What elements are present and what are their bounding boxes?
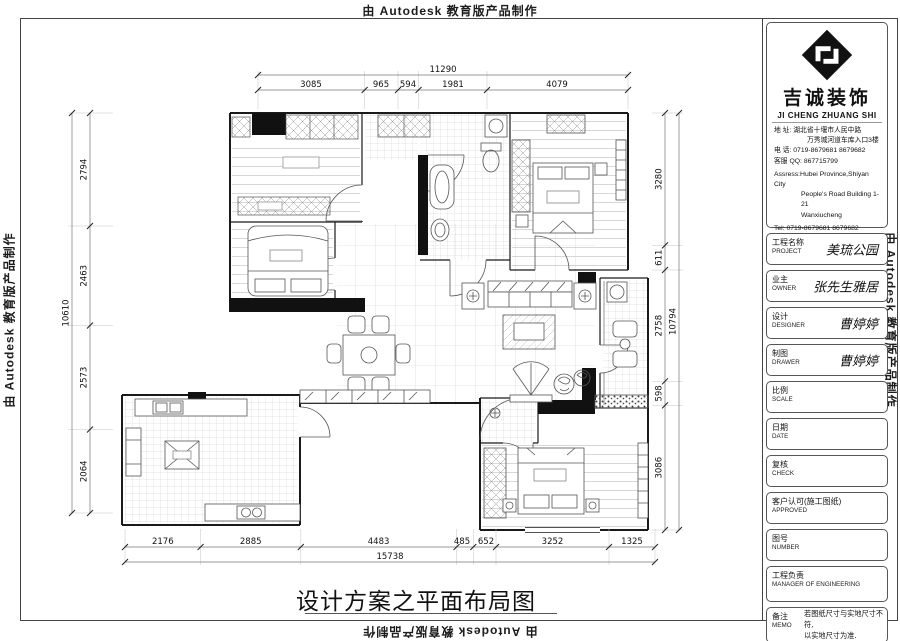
company-name-cn: 吉诚装饰 [767, 83, 887, 110]
dim-top-total: 11290 [429, 65, 456, 75]
contact-line: Wanxiucheng [774, 211, 881, 221]
washing-machine-icon [485, 115, 507, 137]
field-label-zh: 复核 [772, 460, 794, 470]
field-date: 日期DATE [766, 418, 888, 450]
watermark-left: 由 Autodesk 教育版产品制作 [1, 232, 18, 407]
dim-bottom-seg: 485 [454, 537, 470, 547]
fridge [126, 428, 141, 476]
dim-top-seg: 594 [400, 80, 416, 90]
field-label-en: OWNER [772, 285, 796, 293]
dim-bottom-seg: 4483 [368, 537, 390, 547]
contact-line: 客服 QQ: 867715799 [774, 157, 881, 167]
field-label-zh: 比例 [772, 386, 793, 396]
dim-right-total: 10794 [669, 308, 679, 335]
dim-top-seg: 1981 [442, 80, 464, 90]
drawing-sheet: 由 Autodesk 教育版产品制作 由 Autodesk 教育版产品制作 由 … [0, 0, 900, 641]
field-project: 工程名称PROJECT 美琉公园 [766, 233, 888, 265]
dim-bottom-total: 15738 [376, 552, 403, 562]
closet [547, 115, 585, 133]
field-label-zh: 设计 [772, 312, 805, 322]
dim-top-seg: 965 [373, 80, 389, 90]
field-value: 曹婷婷 [839, 314, 878, 333]
dim-top-seg: 3085 [300, 80, 322, 90]
dim-right-seg: 2758 [655, 315, 665, 337]
nightstand [503, 499, 516, 512]
chair [396, 344, 410, 363]
dining-table [343, 335, 395, 375]
dim-bottom-seg: 652 [478, 537, 494, 547]
dim-bottom-seg: 2885 [240, 537, 262, 547]
company-name-en: JI CHENG ZHUANG SHI [772, 111, 882, 123]
nightstand [595, 163, 607, 175]
wardrobe [512, 140, 530, 212]
planter-box [595, 395, 648, 408]
frame-top-line [20, 18, 898, 19]
field-label-zh: 图号 [772, 534, 799, 544]
nightstand [516, 215, 528, 227]
nightstand [586, 499, 599, 512]
field-value: 曹婷婷 [839, 351, 878, 370]
sink-icon [431, 219, 449, 241]
chair [613, 321, 637, 337]
drawing-title: 设计方案之平面布局图 [296, 582, 536, 616]
company-logo-icon [800, 28, 854, 82]
dim-right-seg: 611 [655, 250, 665, 266]
dim-left-seg: 2064 [80, 460, 90, 482]
floor-plan-drawing: 11290 3085 965 594 1981 4079 10610 2794 … [50, 42, 755, 582]
contact-line: Assress:Hubei Province,Shiyan City [774, 170, 881, 190]
contact-line: 地 址: 湖北省十堰市人民中路 [774, 126, 881, 136]
counter [135, 399, 247, 416]
company-panel: 吉诚装饰 JI CHENG ZHUANG SHI 地 址: 湖北省十堰市人民中路… [766, 22, 888, 228]
chair [348, 316, 365, 333]
field-label-zh: 业主 [772, 275, 796, 285]
field-label-en: CHECK [772, 470, 794, 478]
field-owner: 业主OWNER 张先生雅居 [766, 270, 888, 302]
field-label-zh: 工程负责 [772, 571, 860, 581]
field-value: 美琉公园 [826, 240, 878, 259]
field-label-en: NUMBER [772, 544, 799, 552]
small-table [620, 339, 630, 349]
field-value: 若图纸尺寸与实地尺寸不符, 以实地尺寸为准. [804, 609, 884, 641]
field-label-en: PROJECT [772, 248, 804, 256]
chair [372, 316, 389, 333]
chair [327, 344, 341, 363]
tv [510, 395, 552, 402]
company-contact: 地 址: 湖北省十堰市人民中路 万秀城河道车库入口3楼 电 话: 0719-86… [767, 123, 887, 244]
field-label-en: SCALE [772, 396, 793, 404]
dim-left-seg: 2463 [80, 265, 90, 287]
dim-bottom-seg: 1325 [621, 537, 643, 547]
field-label-en: DRAWER [772, 359, 800, 367]
watermark-top: 由 Autodesk 教育版产品制作 [0, 2, 900, 19]
field-drawer: 制图DRAWER 曹婷婷 [766, 344, 888, 376]
field-label-en: MANAGER OF ENGINEERING [772, 581, 860, 589]
dim-bottom-seg: 3252 [542, 537, 564, 547]
frame-left-line [20, 18, 21, 620]
field-label-zh: 客户认可(施工图纸) [772, 497, 841, 507]
dim-right-seg: 3086 [655, 457, 665, 479]
field-label-zh: 日期 [772, 423, 788, 433]
field-label-en: APPROVED [772, 507, 841, 515]
titleblock-separator-line [762, 18, 763, 620]
field-manager: 工程负责MANAGER OF ENGINEERING [766, 566, 888, 602]
chair [613, 351, 637, 367]
dim-left-total: 10610 [62, 299, 72, 326]
dim-bottom-seg: 2176 [152, 537, 174, 547]
field-label-zh: 备注 [772, 612, 792, 622]
field-approved: 客户认可(施工图纸)APPROVED [766, 492, 888, 524]
dim-right-seg: 598 [655, 385, 665, 401]
field-label-en: DATE [772, 433, 788, 441]
title-block: 吉诚装饰 JI CHENG ZHUANG SHI 地 址: 湖北省十堰市人民中路… [766, 22, 888, 641]
frame-right-line [897, 18, 898, 620]
dim-top-seg: 4079 [546, 80, 568, 90]
contact-line: People's Road Building 1-21 [774, 190, 881, 210]
contact-line: 电 话: 0719-8679681 8679682 [774, 146, 881, 156]
contact-line: 万秀城河道车库入口3楼 [774, 136, 881, 146]
field-label-en: MEMO [772, 622, 792, 630]
field-label-zh: 制图 [772, 349, 800, 359]
field-number: 图号NUMBER [766, 529, 888, 561]
field-label-zh: 工程名称 [772, 238, 804, 248]
dim-right-seg: 3280 [655, 168, 665, 190]
field-check: 复核CHECK [766, 455, 888, 487]
coffee-table [514, 323, 544, 340]
watermark-bottom: 由 Autodesk 教育版产品制作 [362, 624, 537, 641]
sideboard-cabinet [300, 390, 430, 403]
dim-left-seg: 2573 [80, 367, 90, 389]
dim-left-seg: 2794 [80, 159, 90, 181]
field-value: 张先生雅居 [813, 277, 878, 296]
field-designer: 设计DESIGNER 曹婷婷 [766, 307, 888, 339]
bathtub-icon [430, 165, 454, 209]
entry-shoe-cabinet [378, 115, 430, 137]
field-label-en: DESIGNER [772, 322, 805, 330]
field-scale: 比例SCALE [766, 381, 888, 413]
drawing-title-underline [305, 613, 557, 614]
field-memo: 备注MEMO 若图纸尺寸与实地尺寸不符, 以实地尺寸为准. [766, 607, 888, 641]
bedroom2 [248, 226, 328, 296]
